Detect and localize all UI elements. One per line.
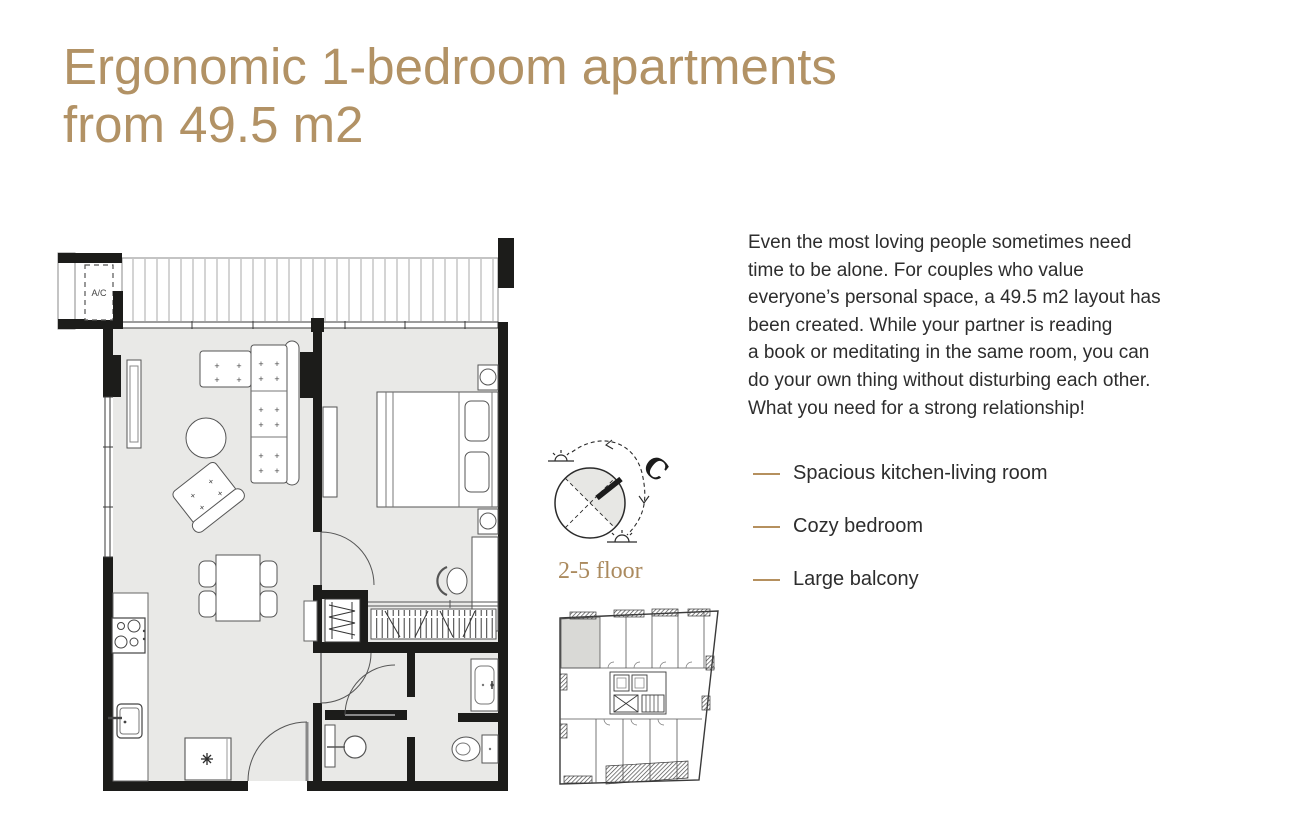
north-label: C <box>637 449 675 489</box>
svg-text:+: + <box>274 405 279 415</box>
svg-text:+: + <box>258 466 263 476</box>
feature-label: Large balcony <box>793 568 919 591</box>
title-line-2: from 49.5 m2 <box>63 96 363 153</box>
floor-plan: A/C <box>55 225 525 810</box>
feature-label: Cozy bedroom <box>793 515 923 538</box>
svg-text:+: + <box>214 361 219 371</box>
svg-text:+: + <box>274 374 279 384</box>
feature-item: Spacious kitchen-living room <box>753 462 1048 485</box>
dash-bullet-icon <box>753 473 780 475</box>
svg-text:+: + <box>274 451 279 461</box>
building-plan <box>548 598 733 803</box>
bed <box>377 392 498 507</box>
stove <box>112 618 145 653</box>
svg-text:+: + <box>236 361 241 371</box>
title-line-1: Ergonomic 1-bedroom apartments <box>63 38 837 95</box>
svg-text:+: + <box>274 359 279 369</box>
svg-text:+: + <box>258 405 263 415</box>
ac-label: A/C <box>91 288 107 298</box>
elevator <box>632 675 647 691</box>
long-wardrobe <box>368 600 498 639</box>
toilet <box>452 735 498 763</box>
ac-unit: A/C <box>58 253 123 329</box>
feature-item: Cozy bedroom <box>753 515 1048 538</box>
dining-table <box>216 555 260 621</box>
dash-bullet-icon <box>753 526 780 528</box>
nightstand <box>478 509 498 534</box>
sunset-icon <box>607 530 637 542</box>
svg-text:+: + <box>258 451 263 461</box>
feature-item: Large balcony <box>753 568 1048 591</box>
floor-range-label: 2-5 floor <box>558 558 643 585</box>
desk-chair <box>447 568 467 594</box>
svg-text:+: + <box>214 375 219 385</box>
compass-icon: C <box>546 437 676 557</box>
page-title: Ergonomic 1-bedroom apartments from 49.5… <box>63 38 837 154</box>
nightstand <box>478 365 498 390</box>
sunrise-icon <box>548 450 574 461</box>
stairwell <box>642 695 664 712</box>
tv-console <box>127 360 141 448</box>
svg-text:+: + <box>258 359 263 369</box>
dash-bullet-icon <box>753 579 780 581</box>
highlighted-unit <box>561 617 600 668</box>
washing-machine <box>344 736 366 758</box>
building-core <box>610 672 666 714</box>
apartment-section: Ergonomic 1-bedroom apartments from 49.5… <box>0 0 1312 828</box>
svg-text:+: + <box>258 420 263 430</box>
elevator <box>614 675 629 691</box>
fridge <box>185 738 231 780</box>
svg-text:+: + <box>274 466 279 476</box>
svg-text:+: + <box>258 374 263 384</box>
window-left <box>103 397 113 557</box>
balcony <box>122 258 498 329</box>
vanity-sink <box>471 659 498 711</box>
coffee-table <box>186 418 226 458</box>
feature-label: Spacious kitchen-living room <box>793 462 1048 485</box>
feature-list: Spacious kitchen-living room Cozy bedroo… <box>753 462 1048 591</box>
description-text: Even the most loving people sometimes ne… <box>748 229 1248 422</box>
dresser <box>323 407 337 497</box>
hall-niche <box>304 601 317 641</box>
svg-text:+: + <box>274 420 279 430</box>
svg-text:+: + <box>236 375 241 385</box>
